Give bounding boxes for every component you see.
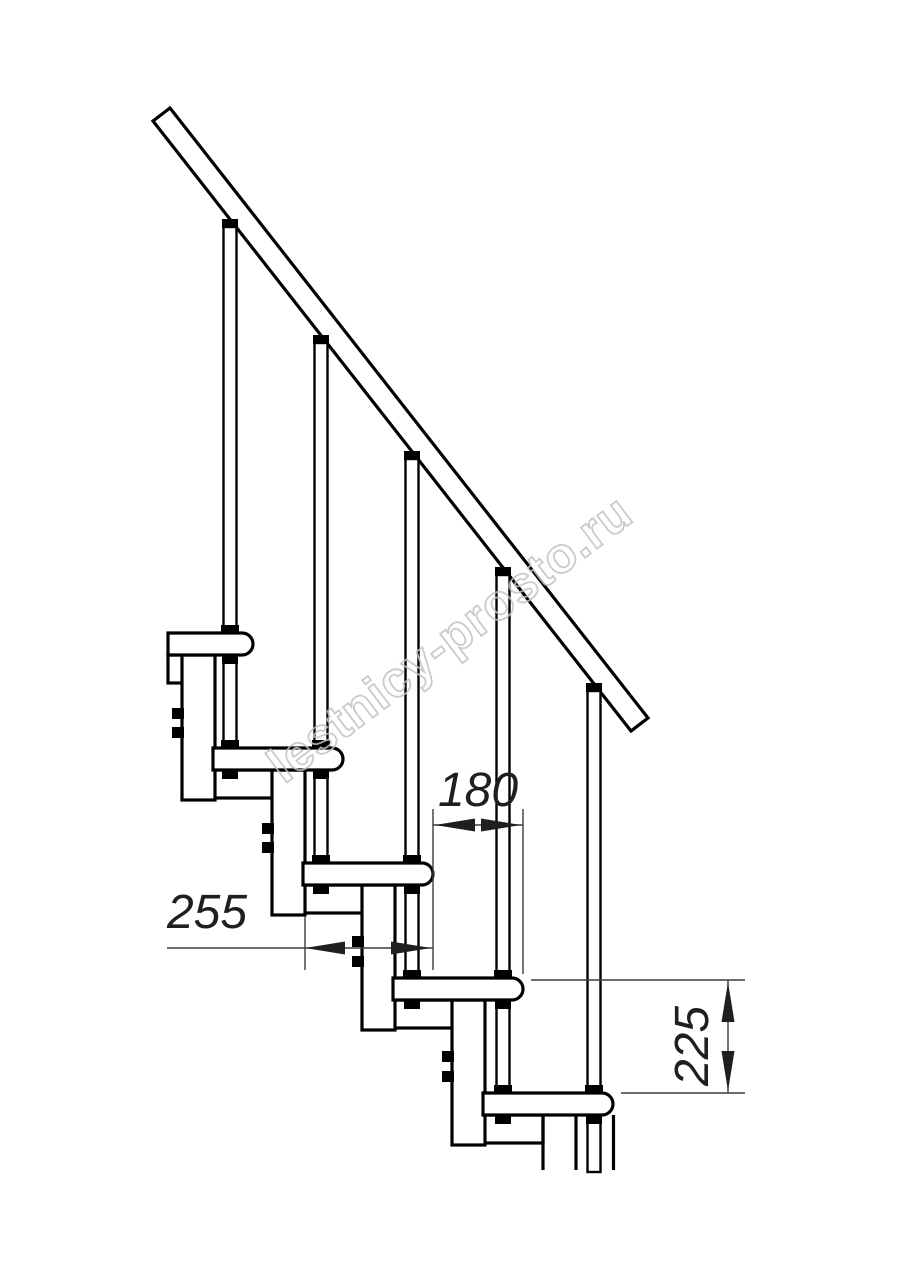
tread-nut	[404, 1001, 420, 1009]
tread-cap	[494, 970, 512, 978]
tread-cap	[585, 1085, 603, 1093]
bracket-column	[362, 885, 395, 1030]
rail-connector-cap	[222, 219, 238, 228]
baluster	[315, 343, 328, 748]
baluster	[588, 691, 601, 1093]
arrow-left-icon	[305, 942, 345, 955]
bolt	[352, 956, 364, 967]
dimension-value: 225	[666, 1006, 719, 1087]
bracket-column	[452, 1000, 485, 1145]
dimension-value: 255	[166, 886, 247, 939]
rail-connector-cap	[313, 335, 329, 344]
bolt	[262, 842, 274, 853]
tread-nut	[222, 771, 238, 779]
tread	[303, 863, 433, 885]
tread-cap	[312, 855, 330, 863]
tread-nut	[222, 656, 238, 664]
bolt	[262, 823, 274, 834]
tread-cap	[221, 740, 239, 748]
arrow-down-icon	[722, 1051, 735, 1091]
rail-connector-cap	[586, 683, 602, 692]
tread-nut	[586, 1116, 602, 1124]
tread-nut	[313, 886, 329, 894]
arrow-up-icon	[722, 982, 735, 1022]
drawing-page: lestnicy-prosto.ru 255 180 225	[0, 0, 914, 1280]
baluster	[224, 227, 237, 633]
dimension-value: 180	[438, 764, 518, 817]
tread-cap	[221, 625, 239, 633]
tread-nut	[404, 886, 420, 894]
bolt	[442, 1051, 454, 1062]
bolt	[172, 708, 184, 719]
bolt	[442, 1071, 454, 1082]
tread	[168, 633, 253, 655]
bracket-column-cut	[543, 1115, 576, 1170]
arrow-left-icon	[435, 819, 475, 832]
tread-cap	[494, 1085, 512, 1093]
bracket-column	[182, 655, 215, 800]
dimension-225: 225	[531, 980, 745, 1093]
tread-cap	[403, 970, 421, 978]
tread	[393, 978, 523, 1000]
tread-nut	[495, 1001, 511, 1009]
rail-connector-cap	[404, 451, 420, 460]
tread-cap	[403, 855, 421, 863]
tread	[483, 1093, 613, 1115]
staircase-elevation-drawing: lestnicy-prosto.ru 255 180 225	[0, 0, 914, 1280]
tread-nut	[495, 1116, 511, 1124]
bolt	[172, 727, 184, 738]
bolt	[352, 936, 364, 947]
